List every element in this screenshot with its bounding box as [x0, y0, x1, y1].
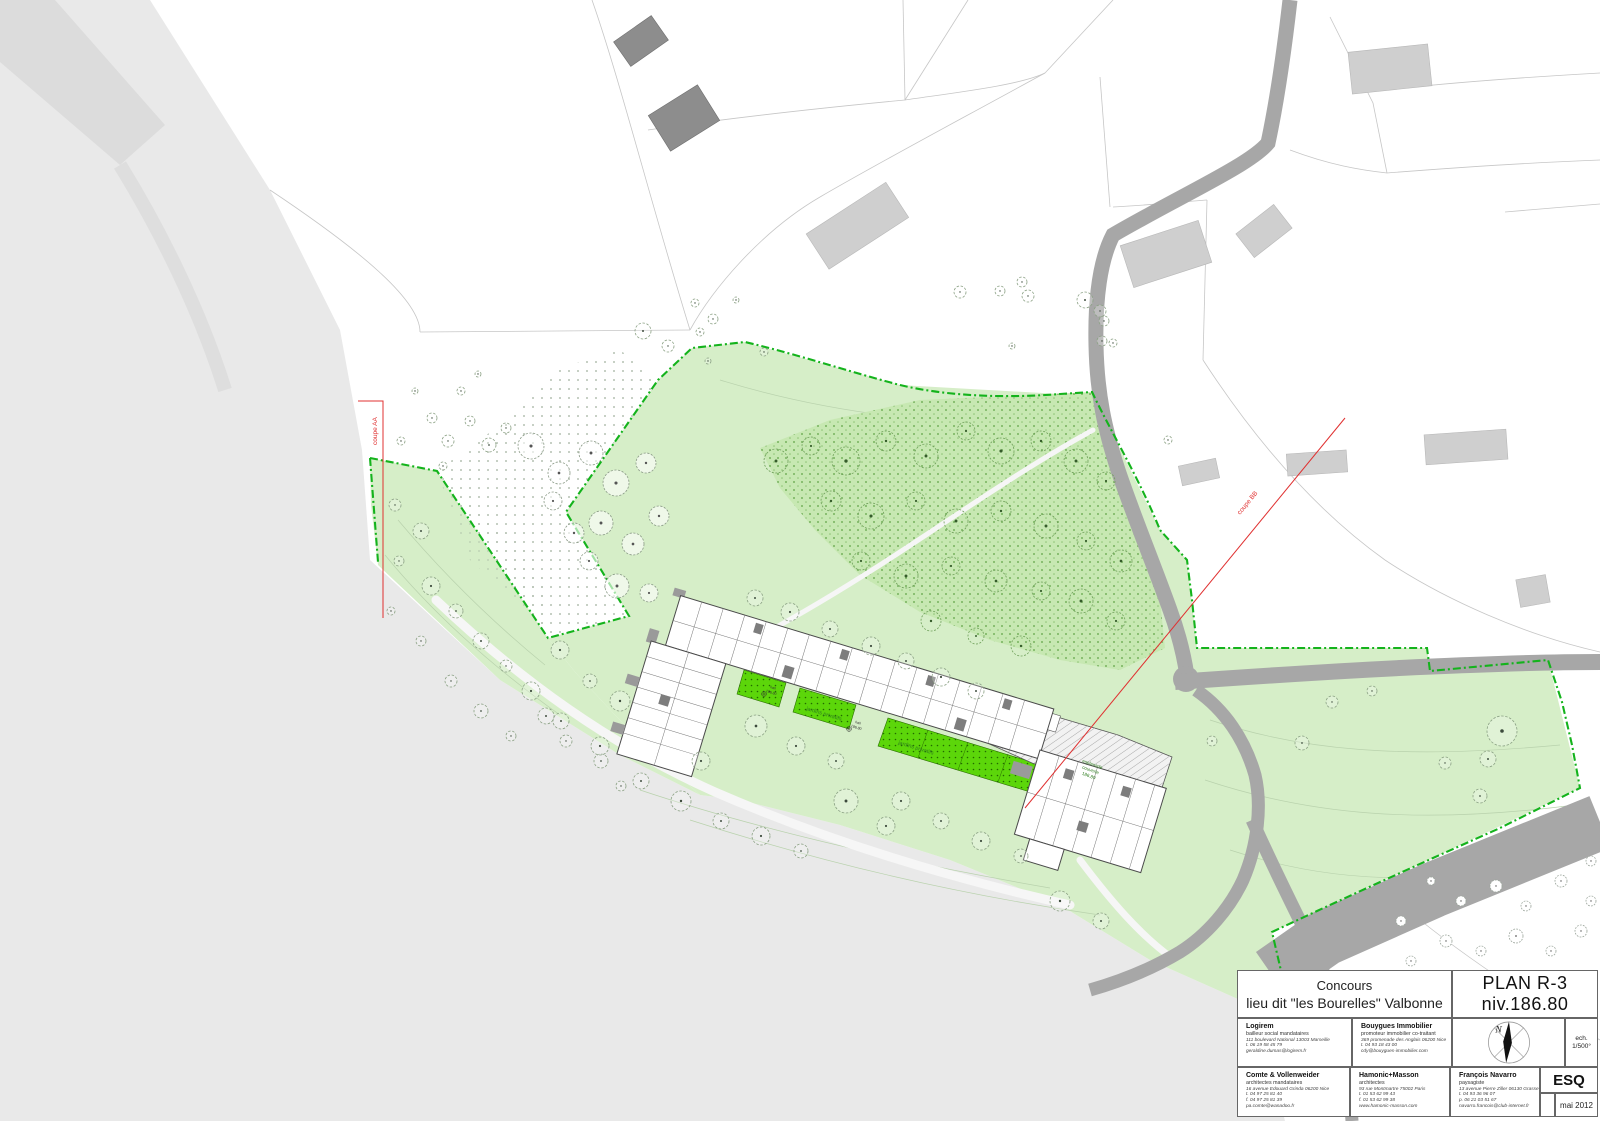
title-cell-plan-name: PLAN R-3 niv.186.80	[1452, 970, 1598, 1018]
contact-line: pa.comte@wanadoo.fr	[1246, 1104, 1349, 1110]
scale-cell: ech. 1/500°	[1565, 1018, 1598, 1067]
phase-label: ESQ	[1553, 1072, 1585, 1089]
competition-title: Concours	[1317, 978, 1373, 993]
contact-cell-hamonic: Hamonic+Masson architectes 93 rue Montma…	[1350, 1067, 1450, 1117]
north-letter: N	[1494, 1025, 1502, 1036]
date-cell: mai 2012	[1555, 1093, 1598, 1117]
compass-needle	[1500, 1021, 1514, 1063]
contact-name: Bouygues Immobilier	[1361, 1023, 1451, 1031]
scale-label: ech.	[1575, 1035, 1587, 1043]
contact-line: geraldine.dumas@logirem.fr	[1246, 1049, 1351, 1055]
contact-cell-navarro: François Navarro paysagiste 13 avenue Pi…	[1450, 1067, 1540, 1117]
phase-cell: ESQ	[1540, 1067, 1598, 1093]
contact-name: François Navarro	[1459, 1072, 1539, 1080]
contact-name: Logirem	[1246, 1023, 1351, 1031]
empty-cell	[1540, 1093, 1555, 1117]
section-aa-label: coupe AA	[372, 417, 379, 445]
contact-name: Comte & Vollenweider	[1246, 1072, 1349, 1080]
contact-cell-logirem: Logirem bailleur social mandataires 111 …	[1237, 1018, 1352, 1067]
north-arrow: N	[1484, 1019, 1534, 1066]
scale-value: 1/500°	[1572, 1043, 1591, 1051]
north-arrow-cell: N	[1452, 1018, 1565, 1067]
site-plan-drawing: parkings stationnements couverts sur ter…	[0, 0, 1600, 1121]
plan-title: PLAN R-3 niv.186.80	[1453, 973, 1597, 1015]
site-plan-sheet: parkings stationnements couverts sur ter…	[0, 0, 1600, 1121]
title-cell-competition: Concours lieu dit "les Bourelles" Valbon…	[1237, 970, 1452, 1018]
competition-subtitle: lieu dit "les Bourelles" Valbonne	[1246, 995, 1442, 1011]
contact-cell-bouygues: Bouygues Immobilier promoteur immobilier…	[1352, 1018, 1452, 1067]
contact-line: cdy@bouygues-immobilier.com	[1361, 1049, 1451, 1055]
contact-line: navarro.francois@club-internet.fr	[1459, 1104, 1539, 1110]
contact-cell-comte: Comte & Vollenweider architectes mandata…	[1237, 1067, 1350, 1117]
date-label: mai 2012	[1560, 1101, 1593, 1110]
contact-name: Hamonic+Masson	[1359, 1072, 1449, 1080]
contact-line: www.hamonic-masson.com	[1359, 1104, 1449, 1110]
